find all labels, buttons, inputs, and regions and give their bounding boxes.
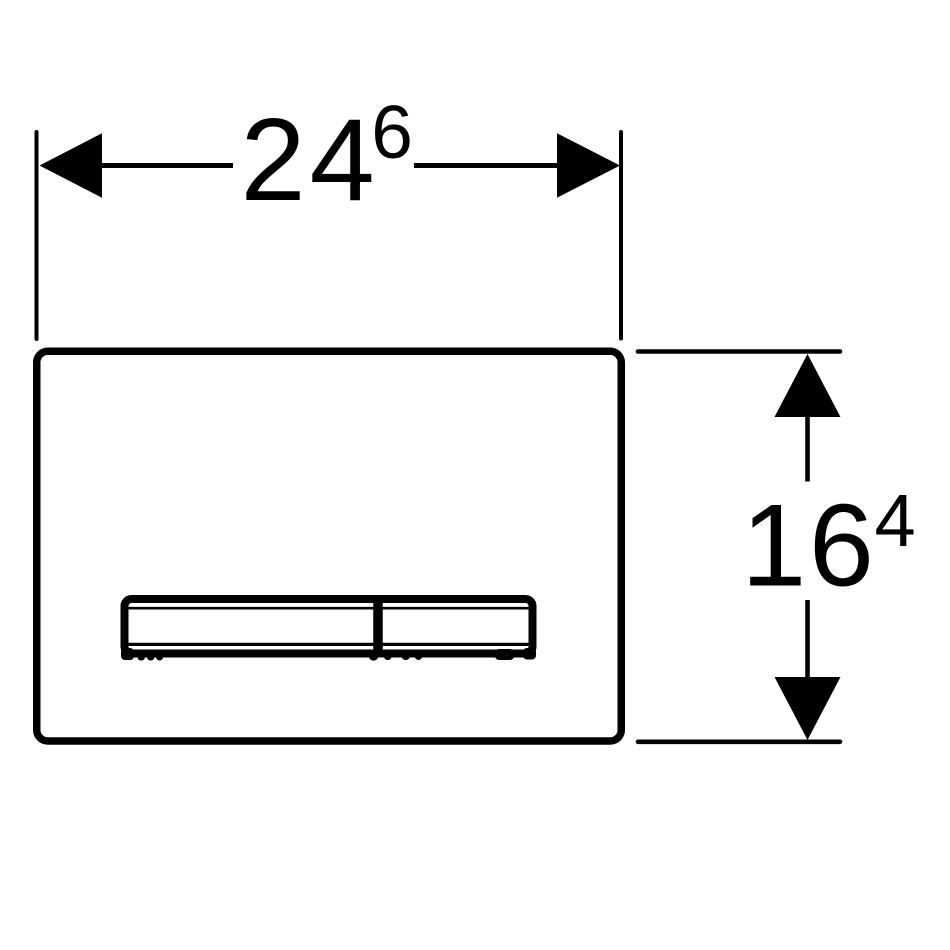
svg-text:4: 4 xyxy=(875,479,916,562)
svg-text:16: 16 xyxy=(741,480,876,611)
svg-text:6: 6 xyxy=(371,90,413,174)
svg-text:24: 24 xyxy=(241,94,379,225)
